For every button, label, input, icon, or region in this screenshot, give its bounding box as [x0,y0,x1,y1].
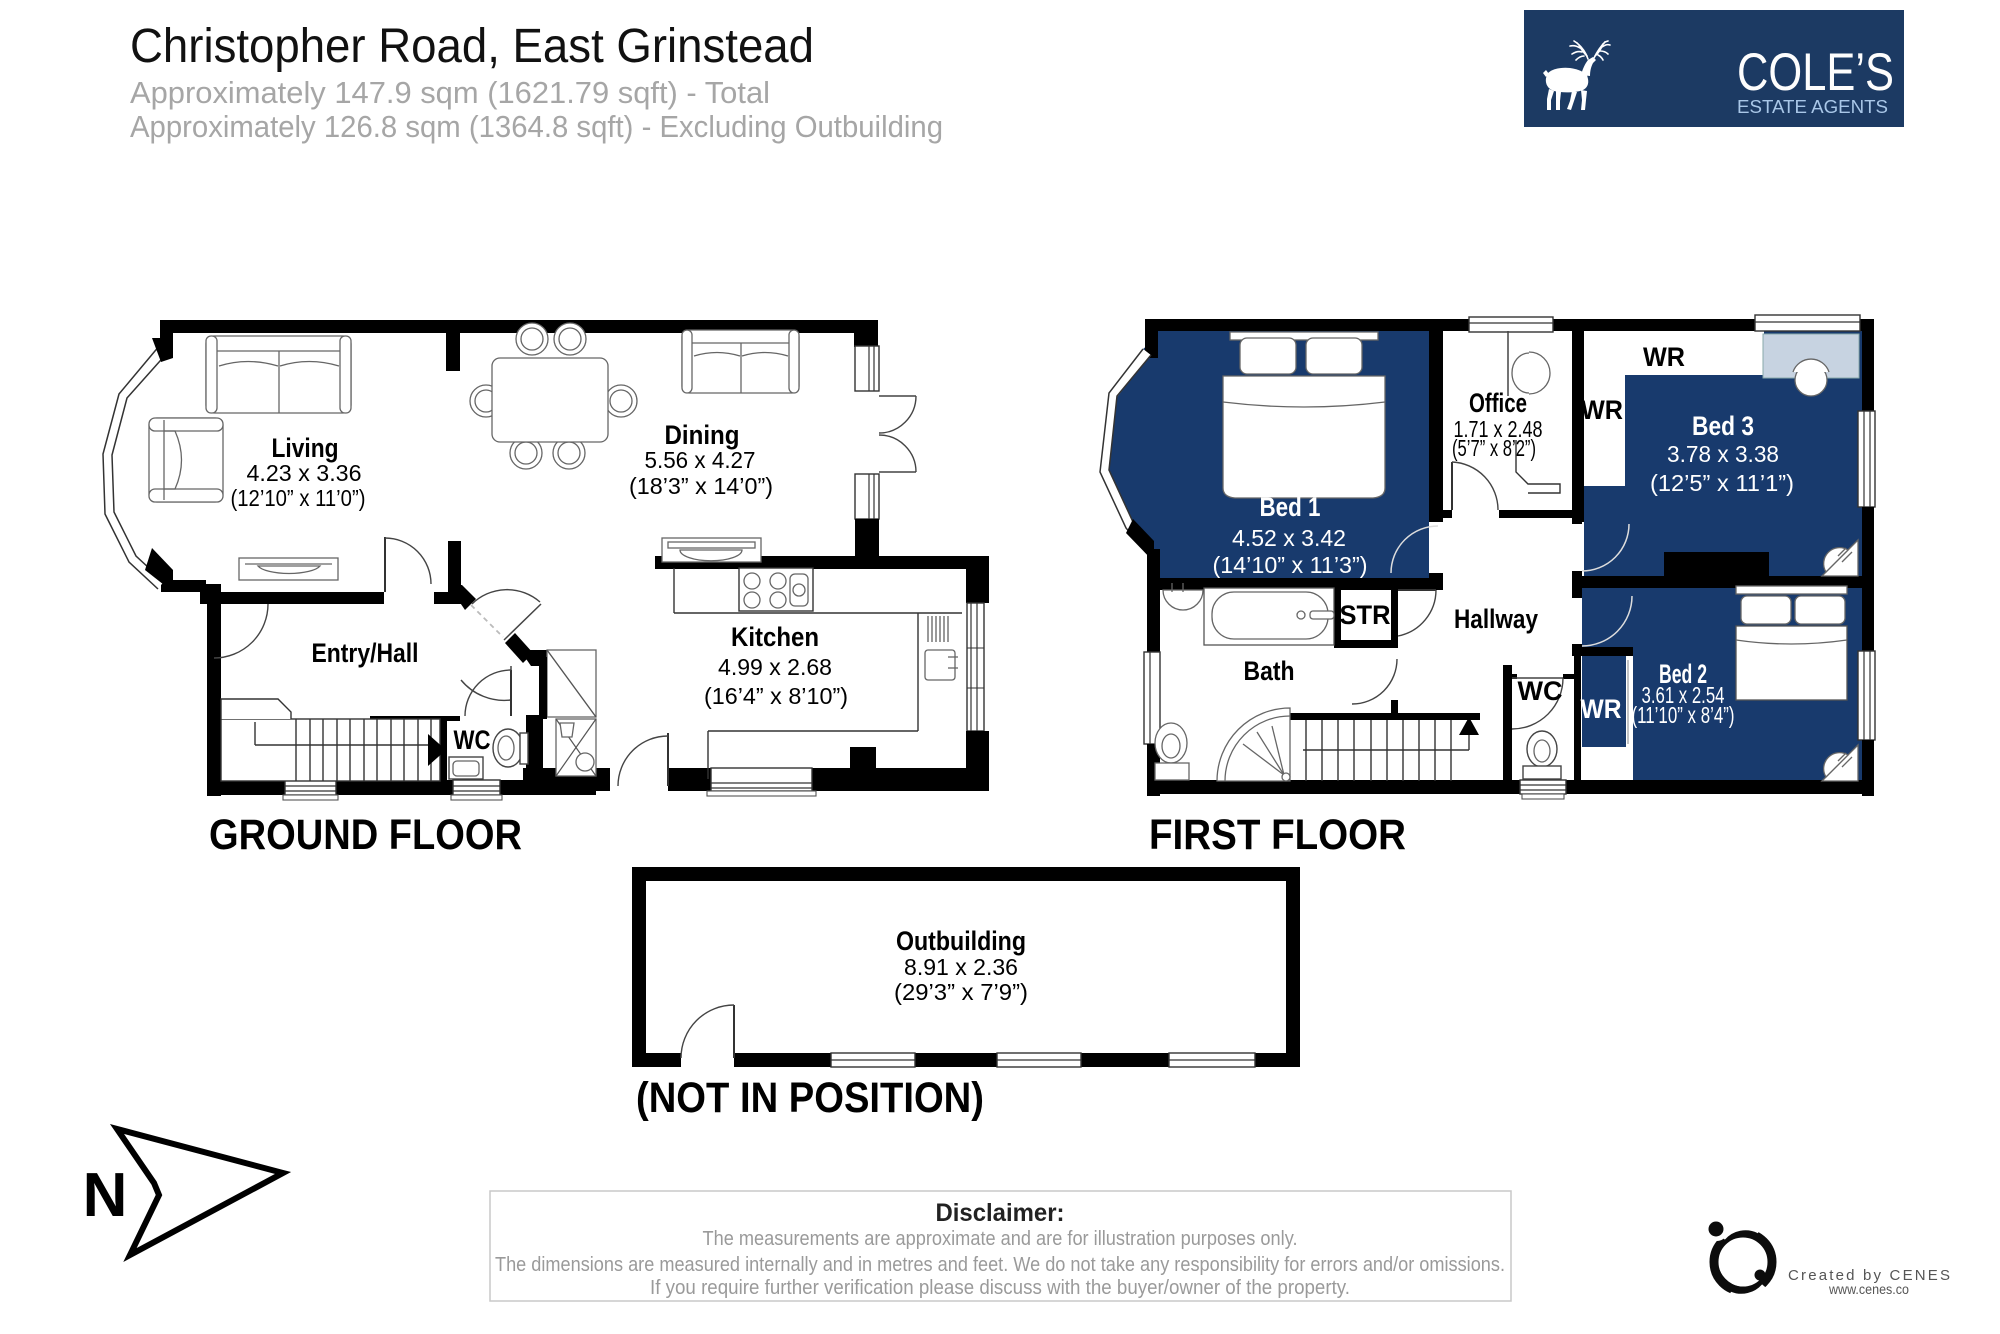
svg-text:4.52 x 3.42: 4.52 x 3.42 [1232,525,1346,551]
svg-text:WC: WC [1518,676,1563,706]
svg-text:5.56 x 4.27: 5.56 x 4.27 [645,447,756,473]
svg-text:COLE’S: COLE’S [1737,43,1894,102]
svg-text:Bath: Bath [1244,656,1295,686]
svg-text:(16’4” x 8’10”): (16’4” x 8’10”) [704,683,848,709]
svg-text:8.91 x 2.36: 8.91 x 2.36 [904,954,1018,980]
svg-text:Living: Living [272,433,339,463]
svg-text:WC: WC [454,725,491,755]
svg-text:Kitchen: Kitchen [731,622,819,652]
svg-text:FIRST FLOOR: FIRST FLOOR [1149,811,1406,859]
svg-text:GROUND FLOOR: GROUND FLOOR [209,811,522,859]
svg-text:STR: STR [1340,600,1391,630]
svg-text:(12’10” x 11’0”): (12’10” x 11’0”) [231,485,366,511]
svg-text:(14’10” x 11’3”): (14’10” x 11’3”) [1213,552,1368,578]
svg-text:Bed 3: Bed 3 [1692,411,1754,441]
svg-text:Dining: Dining [665,420,740,450]
svg-text:If you require further verific: If you require further verification plea… [650,1277,1350,1299]
svg-text:Hallway: Hallway [1454,604,1538,634]
svg-text:(12’5” x 11’1”): (12’5” x 11’1”) [1650,470,1794,496]
svg-text:WR: WR [1581,694,1622,724]
svg-text:(NOT IN POSITION): (NOT IN POSITION) [636,1074,984,1122]
svg-text:Christopher Road, East Grinste: Christopher Road, East Grinstead [130,20,814,73]
svg-text:The dimensions are measured in: The dimensions are measured internally a… [495,1254,1505,1276]
svg-text:Entry/Hall: Entry/Hall [312,638,419,668]
svg-text:WR: WR [1581,395,1623,425]
svg-text:(5’7” x 8’2”): (5’7” x 8’2”) [1452,435,1536,461]
svg-text:Disclaimer:: Disclaimer: [936,1199,1065,1227]
svg-text:The measurements are approxima: The measurements are approximate and are… [703,1228,1298,1250]
svg-text:Bed 1: Bed 1 [1260,492,1321,522]
svg-text:(29’3” x 7’9”): (29’3” x 7’9”) [894,979,1028,1005]
svg-text:4.99 x 2.68: 4.99 x 2.68 [718,654,832,680]
svg-text:WR: WR [1643,342,1685,372]
svg-text:(11’10” x 8’4”): (11’10” x 8’4”) [1632,702,1735,728]
svg-text:4.23 x 3.36: 4.23 x 3.36 [247,460,362,486]
svg-text:Approximately 126.8 sqm (1364.: Approximately 126.8 sqm (1364.8 sqft) - … [130,109,943,144]
svg-text:3.78 x 3.38: 3.78 x 3.38 [1667,441,1779,467]
svg-text:Office: Office [1469,388,1527,418]
svg-text:(18’3” x 14’0”): (18’3” x 14’0”) [629,473,773,499]
svg-text:ESTATE AGENTS: ESTATE AGENTS [1737,96,1888,117]
svg-text:N: N [83,1161,128,1230]
svg-text:Approximately 147.9 sqm (1621.: Approximately 147.9 sqm (1621.79 sqft) -… [130,75,770,110]
svg-text:Outbuilding: Outbuilding [896,926,1026,956]
svg-text:www.cenes.co: www.cenes.co [1828,1282,1909,1297]
